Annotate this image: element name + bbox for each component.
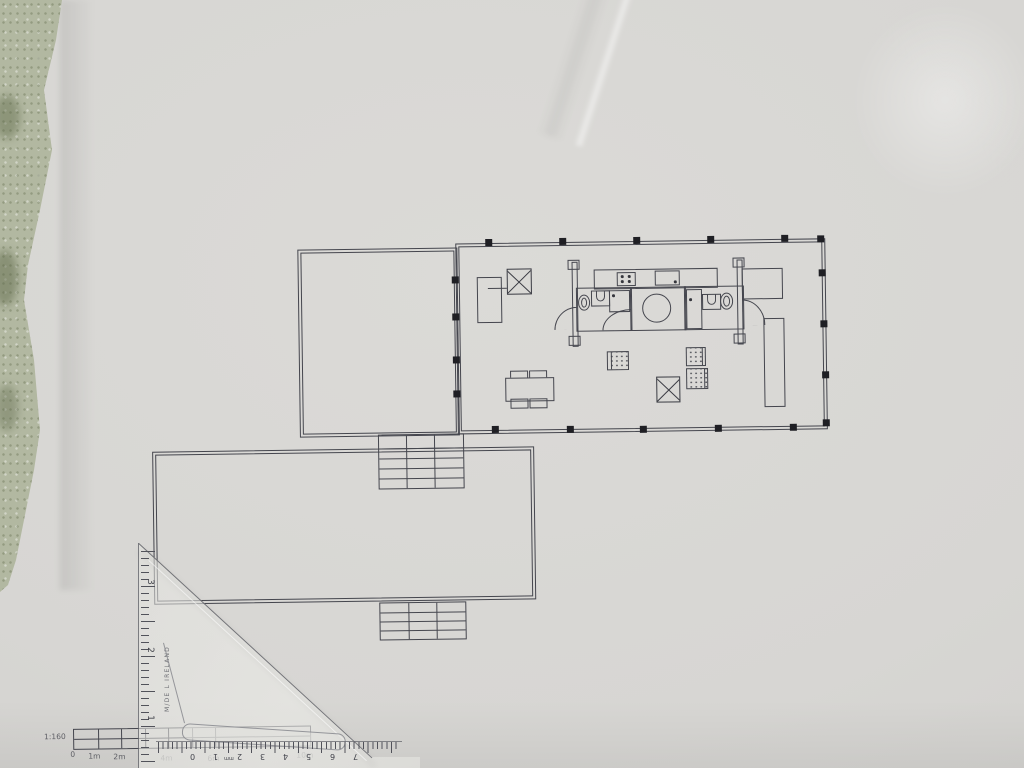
base-scale-unit-label: mm [224, 755, 234, 761]
base-scale-number: 7 [353, 752, 358, 761]
vertical-scale-number: 3 [145, 579, 155, 585]
base-scale-number: 4 [283, 752, 288, 761]
photo-of-floor-plan: 1:160 0 1m 2m 4m 6m 10m 3 2 1 M/DE L IRE… [0, 0, 1024, 768]
base-scale-number: 5 [306, 752, 311, 761]
base-scale-ticks [158, 742, 398, 749]
base-scale-number: 0 [190, 752, 195, 761]
base-scale-number: 2 [237, 752, 242, 761]
base-scale-number: 3 [260, 752, 265, 761]
base-scale-number: 6 [330, 752, 335, 761]
vertical-scale-number: 1 [145, 715, 155, 721]
vertical-scale-number: 2 [145, 647, 155, 653]
set-square-left-edge [138, 543, 139, 768]
set-square-ruler: 3 2 1 M/DE L IRELAND 0 1 mm 2 3 4 5 6 7 [0, 0, 1024, 768]
base-scale-number: 1 [213, 752, 218, 761]
